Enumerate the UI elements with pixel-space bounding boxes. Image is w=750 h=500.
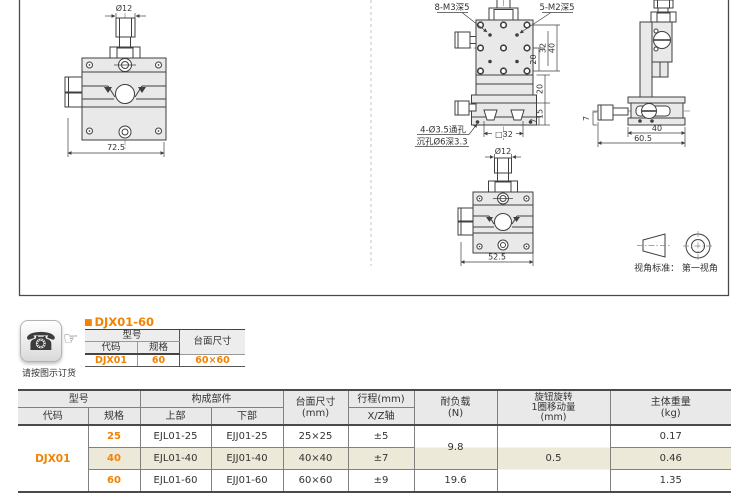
top-view-dim-32: 32: [539, 43, 548, 53]
header-col-spec: 规格: [88, 408, 140, 426]
header-col-knob-travel: 旋钮旋转 1圈移动量 (mm): [497, 390, 610, 425]
projection-note: 视角标准： 第一视角: [634, 262, 718, 274]
header-col-code: 代码: [18, 408, 88, 426]
catalog-page: Ø12 72.5: [0, 0, 750, 500]
cell-size: 40×40: [283, 448, 348, 470]
header-col-upper: 上部: [140, 408, 211, 426]
technical-drawings: Ø12 72.5: [0, 0, 750, 300]
square-bullet-icon: ■: [84, 318, 93, 328]
cell-lower: EJJ01-60: [211, 470, 283, 493]
cell-lower: EJJ01-25: [211, 425, 283, 448]
cell-spec: 40: [88, 448, 140, 470]
cell-weight: 1.35: [610, 470, 731, 493]
header-col-lower: 下部: [211, 408, 283, 426]
header-group-model: 型号: [18, 390, 140, 408]
order-col-code: 代码: [85, 342, 138, 355]
header-col-weight: 主体重量 (kg): [610, 390, 731, 425]
header-col-load-line2: (N): [448, 408, 463, 419]
projection-symbol: [637, 231, 713, 261]
header-col-size-line1: 台面尺寸: [296, 397, 336, 408]
cell-weight: 0.17: [610, 425, 731, 448]
top-view-thread-note-right: 5-M2深5: [539, 3, 574, 13]
cell-travel: ±9: [348, 470, 414, 493]
order-col-model: 型号: [85, 330, 180, 342]
cell-spec: 25: [88, 425, 140, 448]
top-view-hole-note-2: 沉孔Ø6深3.3: [416, 137, 467, 148]
table-row: DJX01 25 EJL01-25 EJJ01-25 25×25 ±5 9.8 …: [18, 425, 731, 448]
cell-load-60: 19.6: [414, 470, 497, 493]
bottom-view-drawing: [458, 154, 533, 266]
header-col-travel-sub: X/Z轴: [348, 408, 414, 426]
order-caption: 请按图示订货: [8, 366, 90, 379]
cell-load-25-40: 9.8: [414, 425, 497, 470]
header-col-size: 台面尺寸 (mm): [283, 390, 348, 425]
side-view-dim-60-5: 60.5: [634, 134, 652, 143]
drawings-svg: Ø12 72.5: [0, 0, 750, 300]
header-group-parts: 构成部件: [140, 390, 283, 408]
side-view-dim-7: 7: [582, 116, 591, 121]
order-value-spec: 60: [138, 354, 180, 367]
header-col-load: 耐负载 (N): [414, 390, 497, 425]
table-row: 40 EJL01-40 EJJ01-40 40×40 ±7 0.46: [18, 448, 731, 470]
cell-size: 60×60: [283, 470, 348, 493]
order-example-model: DJX01-60: [95, 315, 154, 329]
top-view-dim-7: 7: [530, 118, 539, 123]
phone-order-button[interactable]: ☎: [20, 320, 62, 362]
pointer-icon: ☞: [63, 329, 78, 349]
top-view-hole-note-1: 4-Ø3.5通孔: [420, 125, 466, 136]
order-table: 型号 台面尺寸 代码 规格 DJX01 60 60×60: [85, 329, 245, 367]
cell-code: DJX01: [18, 425, 88, 492]
order-value-size: 60×60: [180, 354, 246, 367]
order-value-code: DJX01: [85, 354, 138, 367]
bottom-view-width-dim: 52.5: [488, 253, 506, 262]
header-col-knob-line3: (mm): [541, 412, 567, 423]
cell-travel: ±5: [348, 425, 414, 448]
cell-knob-travel: 0.5: [497, 425, 610, 492]
order-example-title: ■DJX01-60: [84, 315, 154, 329]
header-col-weight-line2: (kg): [661, 408, 681, 419]
cell-weight: 0.46: [610, 448, 731, 470]
cell-size: 25×25: [283, 425, 348, 448]
front-view-width-dim: 72.5: [107, 143, 125, 152]
cell-travel: ±7: [348, 448, 414, 470]
top-view-dim-15: 15: [536, 109, 545, 119]
phone-icon: ☎: [25, 329, 56, 354]
cell-upper: EJL01-40: [140, 448, 211, 470]
header-col-load-line1: 耐负载: [441, 397, 471, 408]
top-view-thread-note-left: 8-M3深5: [434, 3, 469, 13]
cell-upper: EJL01-25: [140, 425, 211, 448]
header-col-weight-line1: 主体重量: [651, 397, 691, 408]
order-col-size: 台面尺寸: [180, 330, 246, 355]
table-row: 60 EJL01-60 EJJ01-60 60×60 ±9 19.6 1.35: [18, 470, 731, 493]
header-col-travel: 行程(mm): [348, 390, 414, 408]
order-col-spec: 规格: [138, 342, 180, 355]
side-view-drawing: [592, 0, 692, 147]
top-view-dim-40: 40: [548, 43, 557, 53]
cell-spec: 60: [88, 470, 140, 493]
front-view-dia-label: Ø12: [116, 3, 132, 13]
cell-upper: EJL01-60: [140, 470, 211, 493]
cell-lower: EJJ01-40: [211, 448, 283, 470]
bottom-view-dia-label: Ø12: [495, 146, 511, 156]
header-col-size-line2: (mm): [302, 408, 329, 419]
top-view-dim-square: □32: [495, 130, 513, 139]
side-view-dim-40: 40: [652, 124, 662, 133]
top-view-dim-20-upper: 20: [529, 54, 538, 64]
spec-table: 型号 构成部件 台面尺寸 (mm) 行程(mm) 耐负载 (N) 旋钮旋转 1圈…: [18, 389, 731, 493]
front-view-drawing: [65, 13, 166, 157]
top-view-dim-20-lower: 20: [536, 84, 545, 94]
